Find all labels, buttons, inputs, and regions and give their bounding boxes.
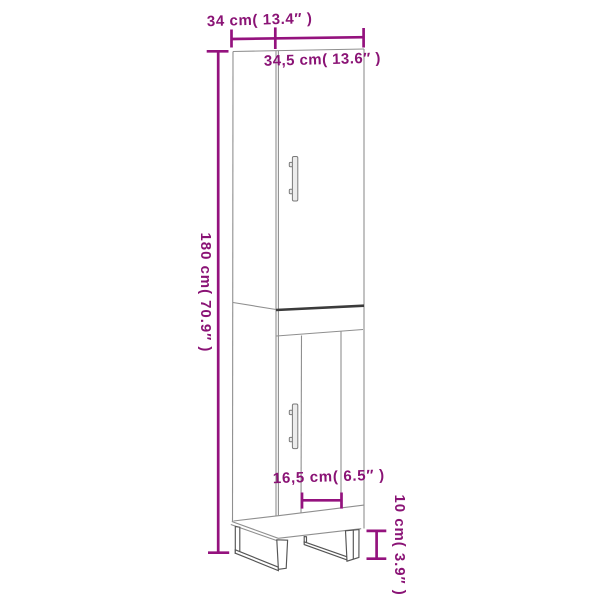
svg-text:34 cm( 13.4″ ): 34 cm( 13.4″ ) — [207, 10, 313, 30]
svg-text:10 cm( 3.9″ ): 10 cm( 3.9″ ) — [391, 495, 408, 596]
svg-text:34,5 cm( 13.6″ ): 34,5 cm( 13.6″ ) — [264, 50, 381, 70]
svg-text:180 cm( 70.9″ ): 180 cm( 70.9″ ) — [197, 233, 214, 353]
svg-text:16,5 cm( 6.5″ ): 16,5 cm( 6.5″ ) — [273, 467, 385, 488]
